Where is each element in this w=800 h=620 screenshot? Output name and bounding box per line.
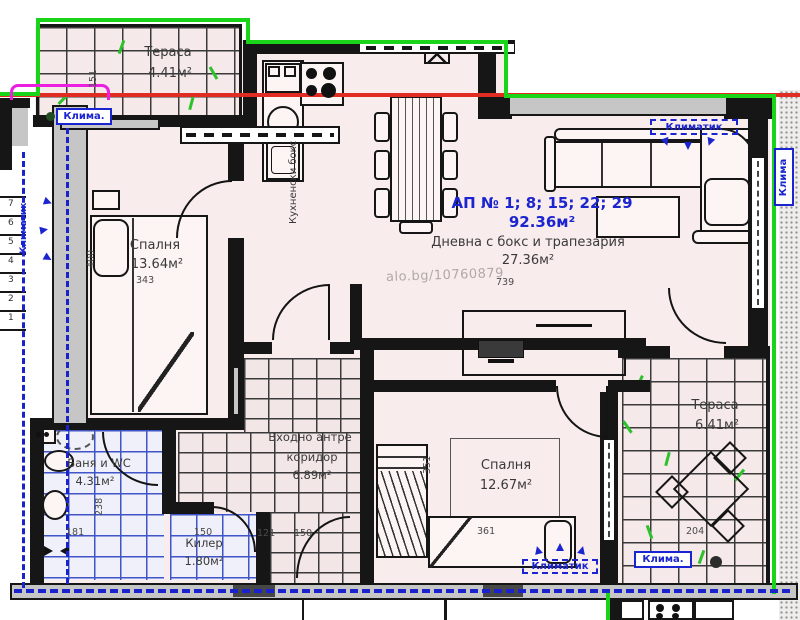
dim-value: 739 — [496, 277, 514, 288]
wall-fill — [12, 108, 28, 146]
mask-top-right — [508, 0, 800, 93]
corridor-label-1: Входно антре — [268, 430, 352, 444]
terrace-top-label: Тераса — [144, 45, 191, 60]
chair — [374, 150, 390, 180]
bedroom1-label: Спалня — [130, 238, 180, 253]
stair-number: 3 — [8, 275, 14, 285]
dimension: 351 — [422, 456, 434, 474]
living-room-label: Дневна с бокс и трапезария — [431, 235, 625, 250]
burner — [656, 613, 663, 619]
room-name: Спалня — [130, 238, 180, 253]
room-name: коридор — [286, 450, 337, 464]
climate-label-vertical: Климатик — [18, 203, 30, 254]
dim-value: 204 — [686, 526, 704, 537]
burner — [656, 604, 664, 612]
room-area: 4.31м² — [76, 474, 115, 488]
dimension: 150 — [294, 528, 312, 540]
stair-number: 5 — [8, 237, 14, 247]
kitchen-box-label: Кухненски бокс — [288, 141, 300, 224]
cabinet-box — [284, 66, 296, 77]
room-area: 1.80м² — [185, 554, 224, 568]
blanket-fold — [430, 516, 472, 568]
wall-segment — [360, 350, 374, 583]
green-line — [504, 94, 776, 98]
wardrobe-shelf — [378, 467, 426, 469]
total-area: 92.36м² — [509, 213, 575, 231]
room-name: Тераса — [144, 45, 191, 60]
room-name: Дневна с бокс и трапезария — [431, 235, 625, 250]
tv-shelf — [536, 324, 592, 327]
stair-number: 7 — [8, 199, 14, 209]
dim-value: 361 — [477, 526, 495, 537]
dimension: 343 — [136, 275, 154, 287]
window-dash-line — [608, 443, 610, 537]
blue-dashed-line — [14, 589, 790, 593]
wall-segment — [766, 352, 770, 583]
window-dashes — [366, 46, 508, 50]
bedroom1-area: 13.64м² — [131, 257, 183, 272]
burner — [306, 85, 317, 96]
window-dash-line — [757, 161, 759, 305]
climate-label-box: Климатик — [650, 119, 738, 135]
dimension: 400 — [86, 250, 98, 268]
apartment-total-area: 92.36м² — [509, 213, 575, 231]
wall-segment — [228, 238, 244, 352]
wall-below — [302, 600, 304, 620]
dim-value: 400 — [86, 250, 97, 268]
wall-segment — [243, 52, 257, 127]
terrace-right-area: 6.41м² — [695, 418, 739, 433]
dining-table — [390, 96, 442, 222]
wall-segment — [350, 284, 362, 342]
room-area: 13.64м² — [131, 257, 183, 272]
stair-number: 6 — [8, 218, 14, 228]
sofa-cushion-line — [650, 143, 652, 186]
corridor-area: 6.89м² — [293, 468, 332, 482]
dimension: 739 — [496, 277, 514, 289]
mask-west — [33, 116, 52, 418]
sofa-seat — [554, 141, 702, 188]
chair — [442, 112, 458, 142]
window — [232, 366, 240, 416]
dim-value: 238 — [94, 498, 105, 516]
wall-below — [444, 598, 447, 620]
floor-plan: 7 6 5 4 3 2 1 — [0, 0, 800, 620]
wall-segment — [330, 342, 354, 354]
climate-label: Клима. — [642, 554, 683, 565]
drain-mark — [710, 556, 722, 568]
terrace-top-border — [36, 24, 242, 118]
pillow — [544, 520, 572, 564]
wall-segment — [162, 502, 214, 514]
chair — [374, 112, 390, 142]
green-line — [36, 18, 250, 22]
tv-screen — [478, 340, 524, 358]
room-name: Тераса — [691, 398, 738, 413]
bedroom2-area: 12.67м² — [480, 478, 532, 493]
blue-dashed-line — [66, 110, 69, 584]
climate-dot — [46, 112, 55, 121]
wall-segment — [256, 512, 270, 583]
bedroom2-label: Спалня — [481, 458, 531, 473]
vanity-knob — [44, 432, 49, 437]
burner — [672, 604, 680, 612]
room-area: 4.41м² — [148, 66, 192, 81]
dim-value: 151 — [88, 70, 99, 88]
door-leaf — [606, 386, 608, 438]
sofa-cushion-line — [601, 143, 603, 186]
chair — [399, 221, 433, 234]
dimension: 181 — [66, 527, 84, 539]
corridor-tiles-b — [178, 432, 360, 512]
climate-label: Клима — [779, 158, 790, 195]
wall-segment — [608, 380, 650, 392]
bath-label: Баня и WC — [67, 456, 131, 470]
climate-label: Климатик — [19, 203, 29, 254]
stairwell-wall — [52, 105, 88, 425]
stair-number: 2 — [8, 294, 14, 304]
bath-area: 4.31м² — [76, 474, 115, 488]
nightstand — [92, 190, 120, 210]
dim-value: 343 — [136, 275, 154, 286]
dimension: 121 — [257, 528, 275, 540]
wall-segment — [244, 342, 272, 354]
dim-value: 351 — [422, 456, 433, 474]
toilet-bowl — [42, 490, 68, 520]
stair-number: 1 — [8, 313, 14, 323]
stair-number: 4 — [8, 256, 14, 266]
climate-label-box: Климатик — [522, 559, 598, 574]
dim-value: 150 — [194, 527, 212, 538]
room-area: 27.36м² — [502, 253, 554, 268]
room-name: Баня и WC — [67, 456, 131, 470]
dimension: 361 — [477, 526, 495, 538]
neighbor-stove — [648, 600, 694, 620]
living-room-area: 27.36м² — [502, 253, 554, 268]
dim-value: 121 — [257, 528, 275, 539]
wardrobe-shelf — [378, 456, 426, 458]
mask-top-mid — [240, 0, 510, 40]
wardrobe-hangers — [378, 471, 426, 556]
dimension: 151 — [88, 70, 100, 88]
burner — [321, 83, 336, 98]
pillow — [93, 219, 129, 277]
terrace-top-area: 4.41м² — [148, 66, 192, 81]
green-line — [246, 40, 508, 44]
dimension: 150 — [194, 527, 212, 539]
airflow-arrow — [39, 225, 48, 234]
room-name: Входно антре — [268, 430, 352, 444]
climate-label-box: Клима. — [56, 108, 112, 125]
dimension: 204 — [686, 526, 704, 538]
window — [508, 96, 728, 116]
chair — [442, 150, 458, 180]
climate-label: Климатик — [531, 561, 588, 572]
stove — [300, 62, 344, 106]
dim-value: 150 — [294, 528, 312, 539]
valve-symbol — [44, 546, 53, 556]
neighbor-counter — [694, 600, 734, 620]
climate-label-box: Клима — [774, 148, 794, 206]
burner — [306, 68, 317, 79]
storage-area: 1.80м² — [185, 554, 224, 568]
climate-label: Клима. — [63, 111, 104, 122]
apartment-title: АП № 1; 8; 15; 22; 29 — [451, 194, 632, 212]
door-leaf — [328, 284, 330, 340]
corridor-tiles-a — [244, 358, 360, 432]
wall-segment — [30, 418, 44, 583]
cabinet-box — [268, 66, 280, 77]
green-line — [606, 592, 610, 620]
climate-label: Климатик — [665, 122, 722, 133]
climate-label-box: Клима. — [634, 551, 692, 568]
room-area: 6.41м² — [695, 418, 739, 433]
room-name: Спалня — [481, 458, 531, 473]
dimension: 238 — [94, 498, 106, 516]
sofa-corner-cushion — [704, 178, 750, 226]
dim-value: 181 — [66, 527, 84, 538]
terrace-right-label: Тераса — [691, 398, 738, 413]
airflow-arrow — [684, 142, 692, 150]
neighbor-cabinet — [620, 600, 644, 620]
wall-segment — [724, 346, 770, 358]
chair — [374, 188, 390, 218]
room-area: 6.89м² — [293, 468, 332, 482]
room-name: Кухненски бокс — [288, 141, 299, 224]
sofa-arm-bottom — [692, 230, 754, 244]
wall-corner — [0, 98, 12, 170]
wall-segment — [228, 115, 244, 181]
room-area: 12.67м² — [480, 478, 532, 493]
green-line — [504, 40, 508, 98]
wall-segment — [374, 380, 556, 392]
burner — [672, 613, 679, 619]
blanket-fold — [138, 332, 194, 412]
vanity-knob — [36, 432, 41, 437]
airflow-arrow — [556, 543, 564, 551]
apartment-numbers: АП № 1; 8; 15; 22; 29 — [451, 194, 632, 212]
tv-stand — [488, 359, 514, 363]
radiator-dashes — [186, 133, 334, 137]
burner — [323, 67, 336, 80]
corridor-label-2: коридор — [286, 450, 337, 464]
